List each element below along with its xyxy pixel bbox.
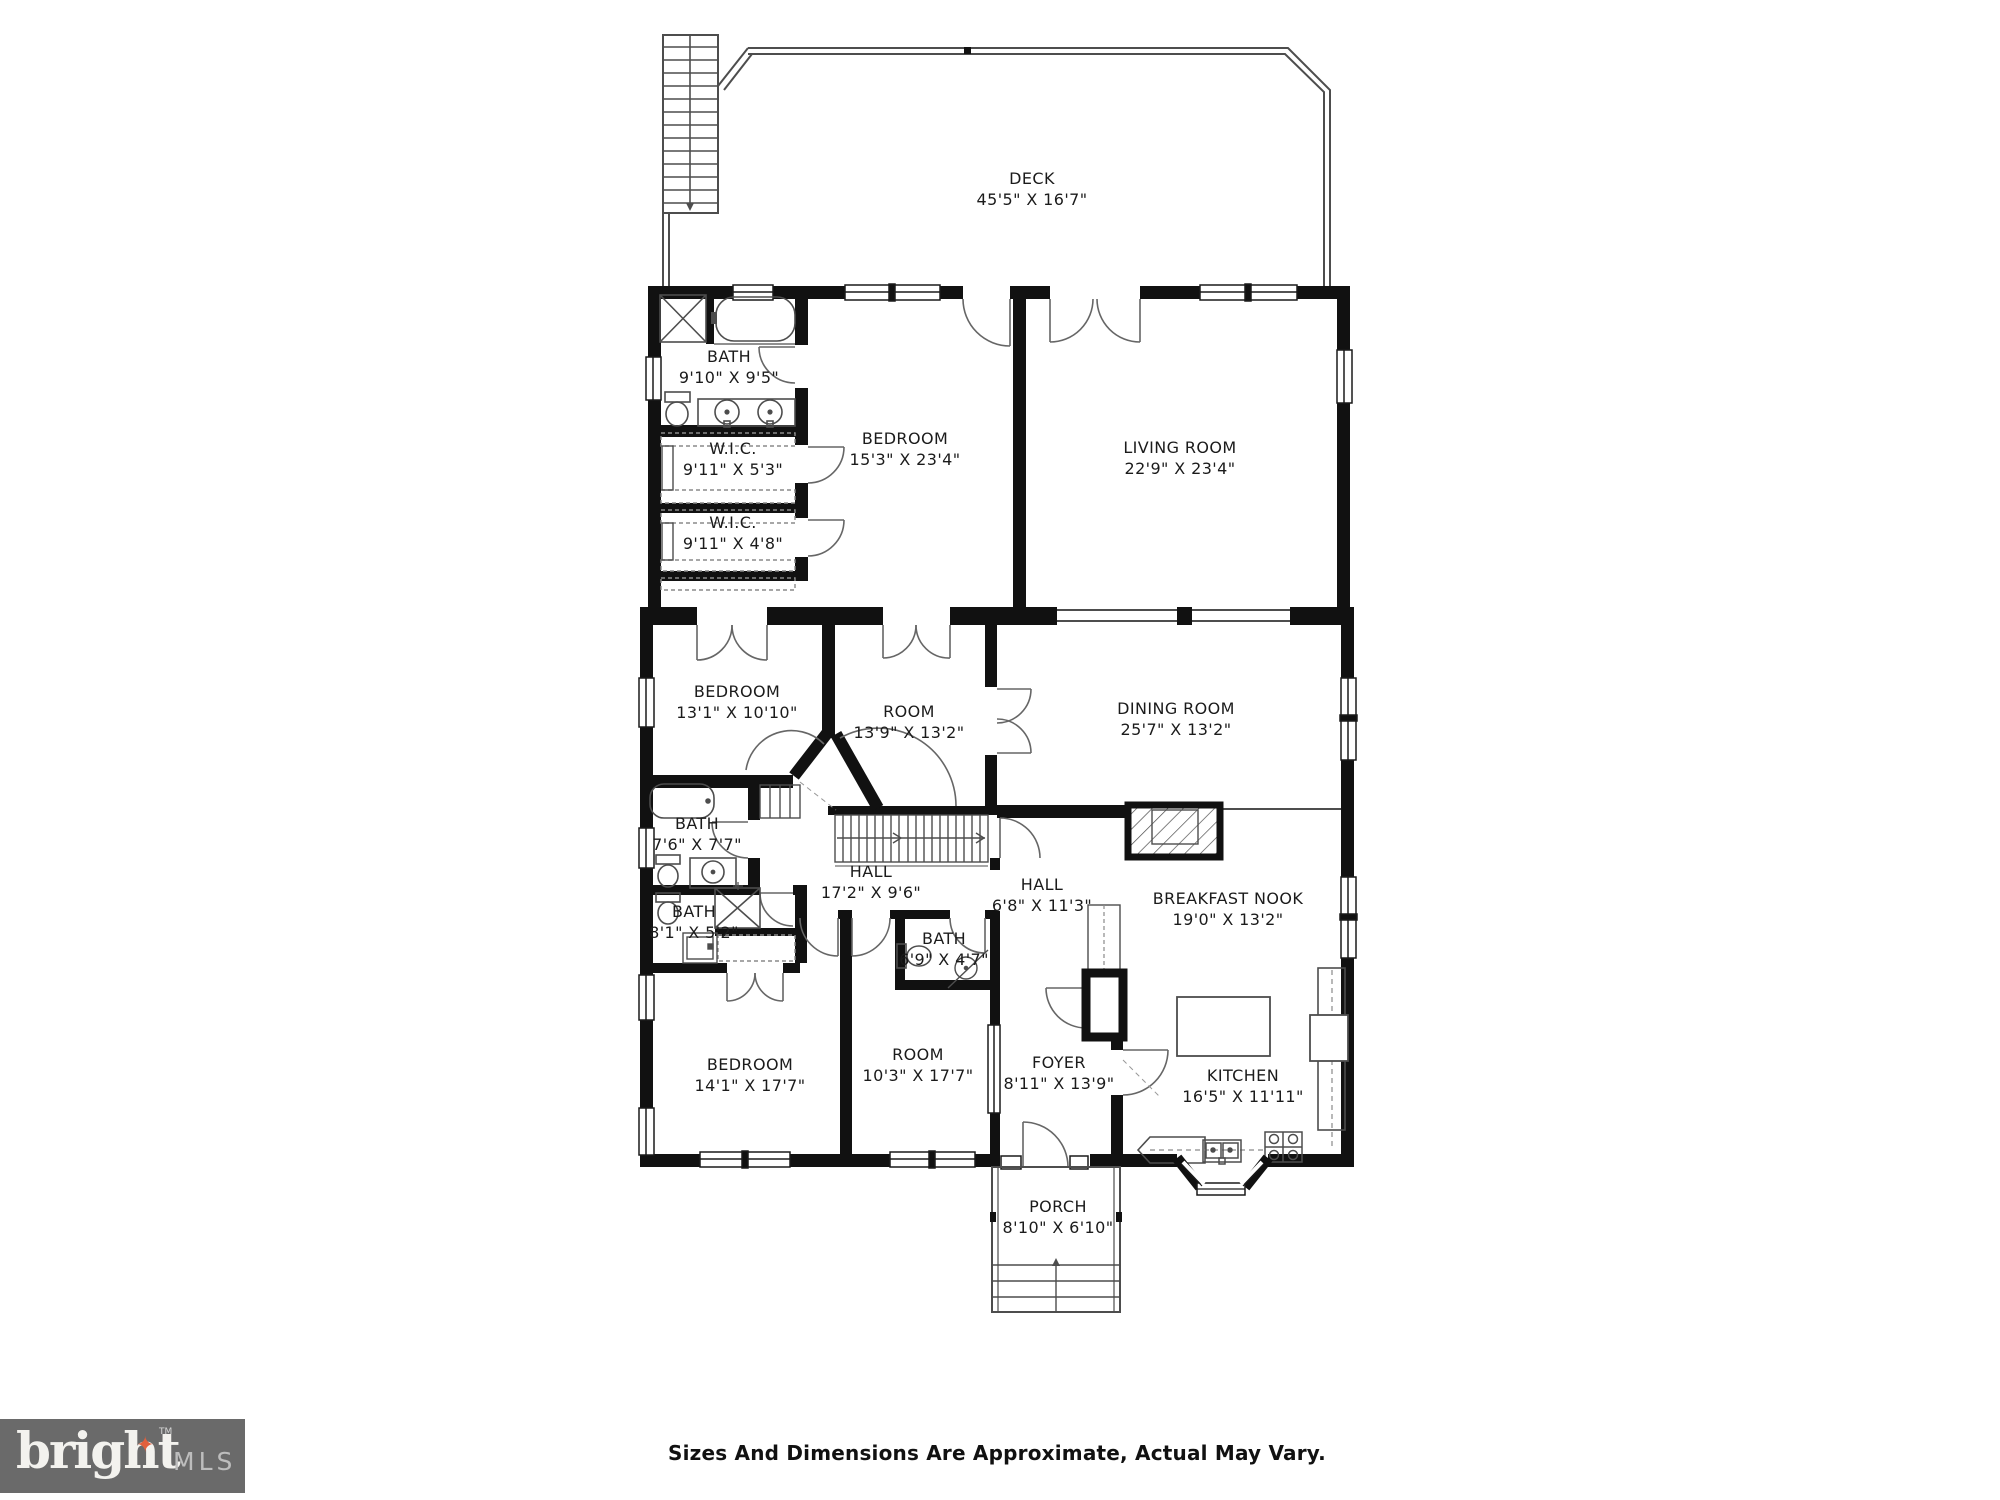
linen-closet-icon: [760, 785, 800, 818]
window: [700, 1151, 790, 1168]
floor-plan-drawing: [0, 0, 2000, 1500]
door-arc: [963, 299, 1010, 346]
door-arc: [1023, 1122, 1068, 1167]
brightmls-logo: bright ✦ TM MLS: [0, 1419, 245, 1493]
logo-mls-text: MLS: [173, 1447, 236, 1476]
porch-steps-icon: [992, 1258, 1120, 1312]
window: [845, 284, 940, 301]
door-arc: [997, 719, 1031, 753]
room-label-hall-west: HALL17'2" X 9'6": [821, 861, 921, 903]
deck-marker: [964, 47, 971, 54]
door-arc: [732, 625, 767, 660]
door-arc: [916, 625, 950, 658]
stove-icon: [1265, 1132, 1302, 1162]
floor-plan-page: DECK45'5" X 16'7" BATH9'10" X 9'5" W.I.C…: [0, 0, 2000, 1500]
room-label-bedroom-mid: BEDROOM13'1" X 10'10": [676, 681, 798, 723]
door-arc: [760, 893, 793, 926]
room-label-bath-mid: BATH7'6" X 7'7": [652, 813, 742, 855]
door-arc: [727, 973, 755, 1001]
kitchen-island: [1177, 997, 1270, 1056]
room-label-living-room: LIVING ROOM22'9" X 23'4": [1123, 437, 1236, 479]
angled-walls: [794, 732, 878, 808]
toilet-icon: [656, 855, 680, 887]
room-label-bedroom-lower: BEDROOM14'1" X 17'7": [695, 1054, 806, 1096]
door-arc: [1050, 299, 1093, 342]
window: [646, 357, 661, 400]
window: [1200, 284, 1297, 301]
room-label-foyer: FOYER8'11" X 13'9": [1004, 1052, 1115, 1094]
room-label-bedroom-upper: BEDROOM15'3" X 23'4": [850, 428, 961, 470]
double-vanity-icon: [698, 399, 795, 427]
room-label-dining-room: DINING ROOM25'7" X 13'2": [1117, 698, 1235, 740]
door-arc: [808, 520, 844, 556]
room-label-breakfast-nook: BREAKFAST NOOK19'0" X 13'2": [1153, 888, 1304, 930]
star-icon: ✦: [136, 1433, 154, 1458]
door-arc: [1097, 299, 1140, 342]
stairs-icon: [835, 815, 988, 866]
window: [988, 1025, 1000, 1113]
room-label-porch: PORCH8'10" X 6'10": [1003, 1196, 1114, 1238]
deck-stairs-icon: [663, 35, 718, 213]
room-label-wic-2: W.I.C.9'11" X 4'8": [683, 512, 783, 554]
room-label-hall-east: HALL6'8" X 11'3": [992, 874, 1092, 916]
room-label-bath-center: BATH6'9" X 4'7": [899, 928, 989, 970]
room-label-room-mid: ROOM13'9" X 13'2": [854, 701, 965, 743]
window: [1340, 678, 1357, 760]
door-arc: [997, 689, 1031, 723]
door-arc: [755, 973, 783, 1001]
room-label-kitchen: KITCHEN16'5" X 11'11": [1182, 1065, 1304, 1107]
vanity-sink-icon: [690, 858, 736, 888]
window: [639, 1108, 654, 1155]
window: [639, 678, 654, 727]
door-arc: [697, 625, 732, 660]
window: [890, 1151, 975, 1168]
room-label-bath-upper: BATH9'10" X 9'5": [679, 346, 779, 388]
fireplace-icon: [1128, 805, 1220, 857]
room-label-room-lower: ROOM10'3" X 17'7": [863, 1044, 974, 1086]
window: [1337, 350, 1352, 403]
door-arc: [852, 918, 890, 956]
kitchen-sink-icon: [1203, 1140, 1241, 1164]
room-label-wic-1: W.I.C.9'11" X 5'3": [683, 438, 783, 480]
logo-tm-text: TM: [159, 1427, 172, 1437]
disclaimer-text: Sizes And Dimensions Are Approximate, Ac…: [668, 1441, 1326, 1465]
room-label-bath-small: BATH8'1" X 5'2": [649, 901, 739, 943]
bathtub-icon: [714, 297, 795, 344]
foyer-closet: [1086, 905, 1123, 1037]
door-arc: [1000, 818, 1040, 858]
room-label-deck: DECK45'5" X 16'7": [977, 168, 1088, 210]
door-arc: [808, 447, 844, 483]
toilet-icon: [665, 392, 690, 426]
door-arc: [883, 625, 916, 658]
window: [1340, 877, 1357, 958]
window: [639, 975, 654, 1020]
door-arc: [1046, 988, 1086, 1028]
door-arc: [1123, 1050, 1168, 1095]
fridge-icon: [1310, 1015, 1348, 1061]
deck: [663, 48, 1330, 286]
